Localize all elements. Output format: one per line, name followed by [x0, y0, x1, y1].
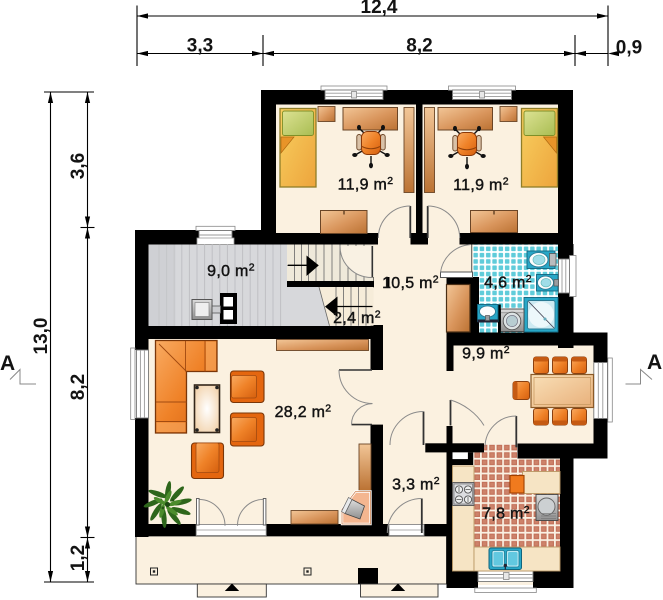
svg-text:9,0 m2: 9,0 m2: [207, 262, 255, 281]
svg-text:4,6 m2: 4,6 m2: [484, 273, 532, 292]
svg-text:0,9: 0,9: [616, 38, 642, 59]
svg-text:12,4: 12,4: [361, 0, 398, 18]
svg-text:3,3: 3,3: [187, 36, 213, 57]
svg-text:11,9 m2: 11,9 m2: [453, 176, 509, 195]
svg-text:A: A: [0, 352, 15, 375]
svg-text:28,2 m2: 28,2 m2: [275, 403, 332, 422]
svg-text:9,9 m2: 9,9 m2: [462, 344, 510, 363]
svg-text:A: A: [647, 351, 662, 374]
svg-text:8,2: 8,2: [68, 374, 89, 400]
svg-text:8,2: 8,2: [406, 36, 432, 57]
svg-text:13,0: 13,0: [31, 318, 52, 355]
svg-text:3,3 m2: 3,3 m2: [392, 475, 440, 494]
svg-text:3,6: 3,6: [68, 153, 89, 179]
svg-text:10,5 m2: 10,5 m2: [382, 274, 439, 293]
svg-text:2,4 m2: 2,4 m2: [333, 309, 381, 328]
svg-text:1,2: 1,2: [68, 545, 89, 571]
svg-text:7,8 m2: 7,8 m2: [482, 504, 530, 523]
svg-text:11,9 m2: 11,9 m2: [338, 175, 394, 194]
